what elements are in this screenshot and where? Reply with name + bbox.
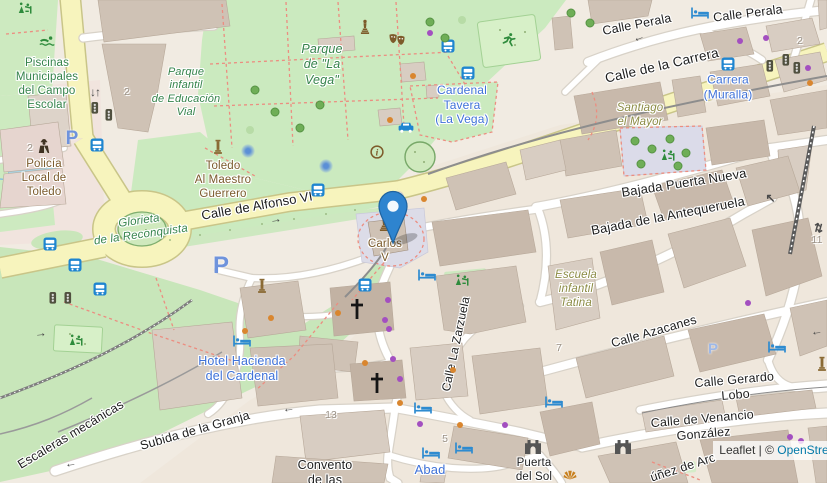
church-icon xyxy=(369,373,385,393)
tree-icon xyxy=(426,18,435,27)
church-icon xyxy=(349,299,365,319)
house-number: 13 xyxy=(325,409,337,421)
monument-icon xyxy=(258,279,267,294)
parking-icon: P xyxy=(66,128,79,150)
hotel-icon xyxy=(414,402,432,415)
viewpoint-icon xyxy=(564,470,577,481)
traffic-signals-icon xyxy=(767,60,774,72)
label-parque-infantil-de-educaci-n-via: Parque infantil de Educación Vial xyxy=(152,66,220,120)
label-ez-de-arc: úñez de Arc xyxy=(648,450,717,483)
tree-icon xyxy=(648,145,657,154)
label-toledo-al-maestro-guerrero: Toledo Al Maestro Guerrero xyxy=(195,159,251,201)
shop-dot-icon xyxy=(805,65,811,71)
city-gate-icon xyxy=(525,440,541,454)
oneway-arrow-icon: ⇅ xyxy=(812,220,824,236)
attribution-copyright: © xyxy=(765,443,777,457)
tree-icon xyxy=(682,149,691,158)
police-icon xyxy=(38,139,50,153)
tree-icon xyxy=(251,86,260,95)
label-puerta-del-sol: Puerta del Sol xyxy=(516,456,552,483)
tree-icon xyxy=(441,34,450,43)
label-calle-perala: Calle Perala xyxy=(712,2,783,26)
attribution-bar: Leaflet | © OpenStreetMap xyxy=(713,441,827,460)
oneway-arrow-icon: ← xyxy=(630,29,645,46)
fountain-icon xyxy=(319,159,333,173)
traffic-signals-icon xyxy=(65,292,72,304)
shop-dot-icon xyxy=(737,38,743,44)
label-piscinas-municipales-del-campo-e: Piscinas Municipales del Campo Escolar xyxy=(16,56,78,112)
label-calle-la-zarzuela: Calle La Zarzuela xyxy=(439,295,473,393)
poi-dot-icon xyxy=(457,422,463,428)
label-subida-de-la-granja: Subida de la Granja xyxy=(138,408,251,454)
oneway-arrow-icon: → xyxy=(268,211,281,227)
hotel-icon xyxy=(455,442,473,455)
label-calle-de-alfonso-vi: Calle de Alfonso VI xyxy=(200,188,314,223)
swimming-icon xyxy=(39,36,55,47)
label-hotel-hacienda-del-cardenal: Hotel Hacienda del Cardenal xyxy=(198,354,286,385)
hotel-icon xyxy=(233,335,251,348)
bus-stop-icon xyxy=(69,259,82,272)
label-bajada-de-la-antequeruela: Bajada de la Antequeruela xyxy=(590,193,746,238)
label-abad: Abad xyxy=(415,462,446,478)
bus-stop-icon xyxy=(94,283,107,296)
label-bajada-puerta-nueva: Bajada Puerta Nueva xyxy=(620,165,747,200)
house-number: 11 xyxy=(812,234,823,246)
tree-icon xyxy=(316,101,325,110)
label-polic-a-local-de-toledo: Policía Local de Toledo xyxy=(22,157,67,199)
parking-icon: P xyxy=(708,341,718,358)
hotel-icon xyxy=(768,341,786,354)
hotel-icon xyxy=(545,396,563,409)
bus-stop-icon xyxy=(44,238,57,251)
running-icon xyxy=(502,33,517,48)
bus-stop-icon xyxy=(462,67,475,80)
shop-dot-icon xyxy=(390,356,396,362)
poi-dot-icon xyxy=(335,310,341,316)
city-gate-icon xyxy=(615,440,631,454)
tree-icon xyxy=(631,137,640,146)
shop-dot-icon xyxy=(385,297,391,303)
poi-dot-icon xyxy=(410,73,416,79)
house-number: 2 xyxy=(27,142,33,154)
shop-dot-icon xyxy=(417,421,423,427)
parking-icon: P xyxy=(213,252,229,280)
label-cardenal-tavera-la-vega: Cardenal Tavera (La Vega) xyxy=(435,83,488,127)
map-canvas[interactable]: Piscinas Municipales del Campo EscolarPa… xyxy=(0,0,827,483)
playground-icon xyxy=(455,274,469,286)
shop-dot-icon xyxy=(502,422,508,428)
tree-icon xyxy=(567,9,576,18)
bus-stop-icon xyxy=(312,184,325,197)
shop-dot-icon xyxy=(386,326,392,332)
monument-icon xyxy=(818,357,827,372)
hotel-icon xyxy=(418,269,436,282)
hotel-icon xyxy=(691,7,709,20)
tree-icon xyxy=(586,19,595,28)
label-convento-de-las: Convento de las xyxy=(298,458,353,483)
label-glorieta-de-la-reconquista: Glorieta de la Reconquista xyxy=(91,208,189,249)
label-parque-de-la-vega: Parque de "La Vega" xyxy=(301,42,342,88)
poi-dot-icon xyxy=(397,400,403,406)
statue-icon xyxy=(360,20,370,35)
oneway-arrow-icon: ← xyxy=(282,400,294,415)
label-calle-gerardo-lobo: Calle Gerardo Lobo xyxy=(688,369,782,407)
house-number: 5 xyxy=(442,433,448,445)
traffic-signals-icon xyxy=(50,292,57,304)
monument-icon xyxy=(214,140,223,155)
shop-dot-icon xyxy=(382,317,388,323)
tree-icon xyxy=(271,108,280,117)
playground-icon xyxy=(69,334,83,346)
marker-pin-hole xyxy=(387,201,398,212)
bus-stop-icon xyxy=(722,58,735,71)
playground-icon xyxy=(18,2,32,14)
traffic-signals-icon xyxy=(783,54,790,66)
tree-icon xyxy=(296,124,305,133)
traffic-signals-icon xyxy=(794,62,801,74)
taxi-icon xyxy=(398,121,414,133)
theatre-icon xyxy=(389,34,406,47)
openstreetmap-link[interactable]: OpenStreetMap xyxy=(777,443,827,457)
oneway-arrow-icon: ↓↑ xyxy=(90,85,100,99)
poi-dot-icon xyxy=(387,117,393,123)
oneway-arrow-icon: → xyxy=(34,325,46,340)
tree-icon xyxy=(666,135,675,144)
traffic-signals-icon xyxy=(92,102,99,114)
traffic-signals-icon xyxy=(106,109,113,121)
information-icon: i xyxy=(370,145,384,159)
shop-dot-icon xyxy=(763,35,769,41)
label-calle-de-la-carrera: Calle de la Carrera xyxy=(604,45,721,87)
poi-dot-icon xyxy=(268,315,274,321)
house-number: 7 xyxy=(556,342,562,354)
poi-dot-icon xyxy=(362,360,368,366)
hotel-icon xyxy=(422,447,440,460)
tree-icon xyxy=(674,162,683,171)
attribution-separator: | xyxy=(755,443,765,457)
bus-stop-icon xyxy=(91,139,104,152)
fountain-icon xyxy=(241,144,255,158)
oneway-arrow-icon: ← xyxy=(810,323,823,338)
poi-dot-icon xyxy=(450,367,456,373)
attribution-prefix: Leaflet xyxy=(719,443,755,457)
map-marker[interactable] xyxy=(377,190,427,251)
bus-stop-icon xyxy=(442,40,455,53)
label-calle-perala: Calle Perala xyxy=(601,11,673,39)
shop-dot-icon xyxy=(397,376,403,382)
oneway-arrow-icon: ↖ xyxy=(765,191,774,205)
shop-dot-icon xyxy=(427,30,433,36)
shop-dot-icon xyxy=(787,434,793,440)
label-escaleras-mec-nicas: Escaleras mecánicas xyxy=(15,397,127,472)
oneway-arrow-icon: ← xyxy=(64,455,77,470)
bus-stop-icon xyxy=(359,279,372,292)
svg-text:i: i xyxy=(376,148,379,158)
playground-icon xyxy=(661,149,675,161)
poi-dot-icon xyxy=(242,328,248,334)
label-santiago-el-mayor: Santiago el Mayor xyxy=(617,101,664,129)
label-carrera-muralla: Carrera (Muralla) xyxy=(704,72,753,101)
label-calle-azacanes: Calle Azacanes xyxy=(609,313,698,352)
house-number: 2 xyxy=(797,35,803,47)
label-escuela-infantil-tatina: Escuela infantil Tatina xyxy=(555,268,597,310)
house-number: 2 xyxy=(124,86,130,98)
poi-dot-icon xyxy=(807,80,813,86)
shop-dot-icon xyxy=(745,300,751,306)
tree-icon xyxy=(637,160,646,169)
